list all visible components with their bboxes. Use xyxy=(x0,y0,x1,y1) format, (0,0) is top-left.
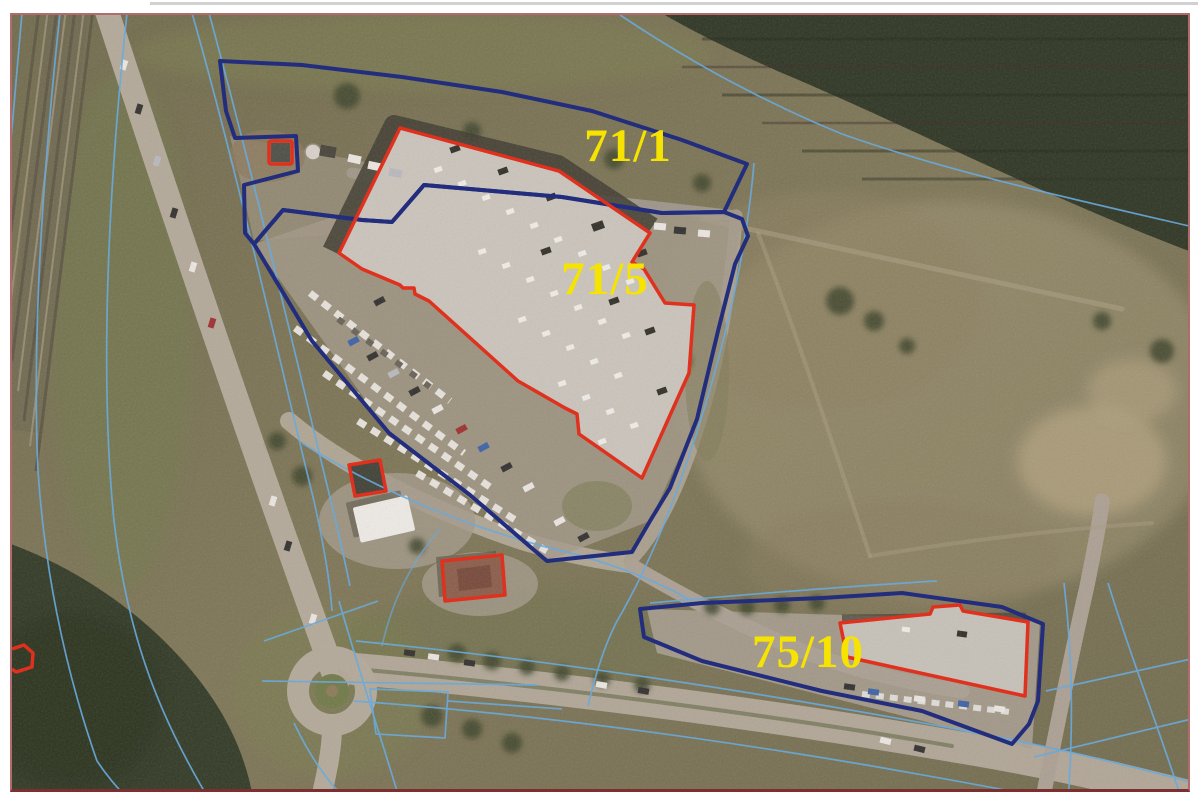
aerial-photo-frame: 71/1 71/5 75/10 xyxy=(10,13,1190,792)
scanned-map-page: 71/1 71/5 75/10 xyxy=(0,0,1200,802)
parcel-label-71-1: 71/1 xyxy=(584,120,672,172)
parcel-label-75-10: 75/10 xyxy=(752,626,864,678)
parcel-label-71-5: 71/5 xyxy=(561,253,649,305)
scan-artifact-streak xyxy=(150,2,1198,5)
aerial-photo: 71/1 71/5 75/10 xyxy=(12,15,1188,789)
